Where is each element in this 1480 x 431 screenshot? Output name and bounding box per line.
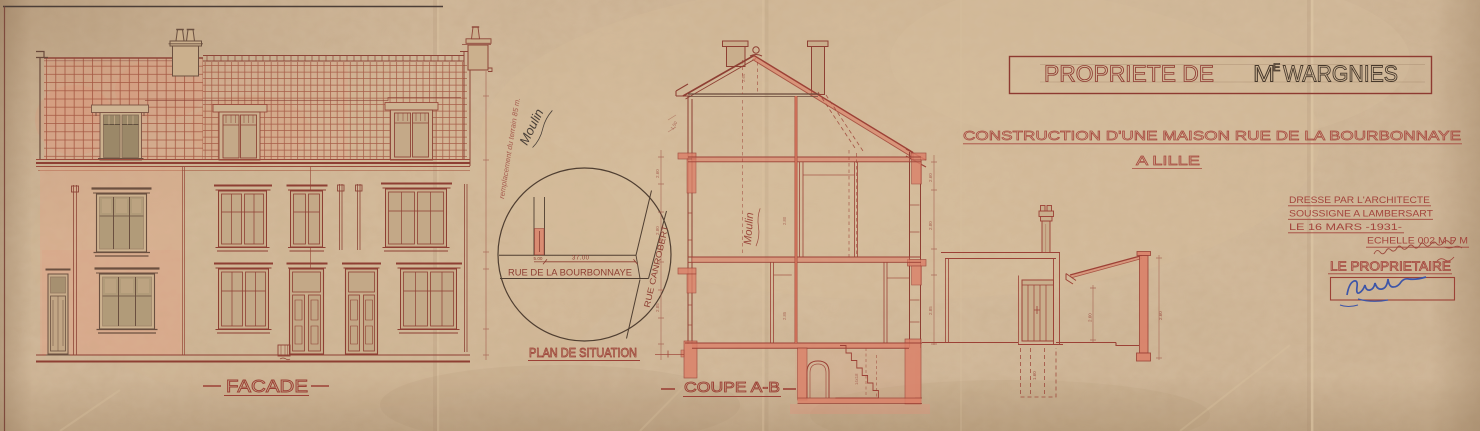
svg-text:E: E [1273,62,1280,74]
svg-text:2.80: 2.80 [782,216,787,225]
svg-text:LE PROPRIETAIRE: LE PROPRIETAIRE [1330,260,1451,274]
svg-text:PLAN DE SITUATION: PLAN DE SITUATION [529,345,637,360]
svg-text:2.60: 2.60 [655,169,660,178]
svg-text:FACADE: FACADE [226,376,308,396]
svg-text:COUPE A-B: COUPE A-B [684,379,780,396]
svg-text:A LILLE: A LILLE [1136,154,1200,168]
svg-text:14x18: 14x18 [854,373,859,385]
svg-text:37.00: 37.00 [572,256,590,262]
svg-text:2.64: 2.64 [741,73,746,82]
svg-text:2.60: 2.60 [928,173,933,182]
svg-text:RUE DE LA BOURBONNAYE: RUE DE LA BOURBONNAYE [508,268,632,278]
svg-text:1.60: 1.60 [1032,371,1037,380]
svg-text:M: M [1253,61,1275,87]
svg-text:2.80: 2.80 [655,226,660,235]
svg-text:CONSTRUCTION D'UNE MAISON R: CONSTRUCTION D'UNE MAISON RUE DE LA BOUR… [963,129,1461,143]
svg-text:2.85: 2.85 [782,311,787,320]
svg-text:DRESSE PAR L'ARCHITECTE: DRESSE PAR L'ARCHITECTE [1289,195,1430,206]
svg-text:2.85: 2.85 [655,303,660,312]
svg-text:ECHELLE 002 M P M: ECHELLE 002 M P M [1367,236,1468,247]
svg-text:PROPRIETE DE: PROPRIETE DE [1044,61,1214,87]
svg-text:WARGNIES: WARGNIES [1283,61,1398,87]
svg-text:SOUSSIGNE A LAMBERSART: SOUSSIGNE A LAMBERSART [1289,209,1433,220]
svg-text:2.85: 2.85 [928,306,933,315]
svg-text:2.80: 2.80 [928,221,933,230]
svg-text:LE 16 MARS -1931-: LE 16 MARS -1931- [1289,222,1402,233]
svg-text:Moulin: Moulin [742,212,756,245]
svg-text:5.00: 5.00 [534,256,543,261]
svg-text:2.60: 2.60 [1088,313,1093,322]
